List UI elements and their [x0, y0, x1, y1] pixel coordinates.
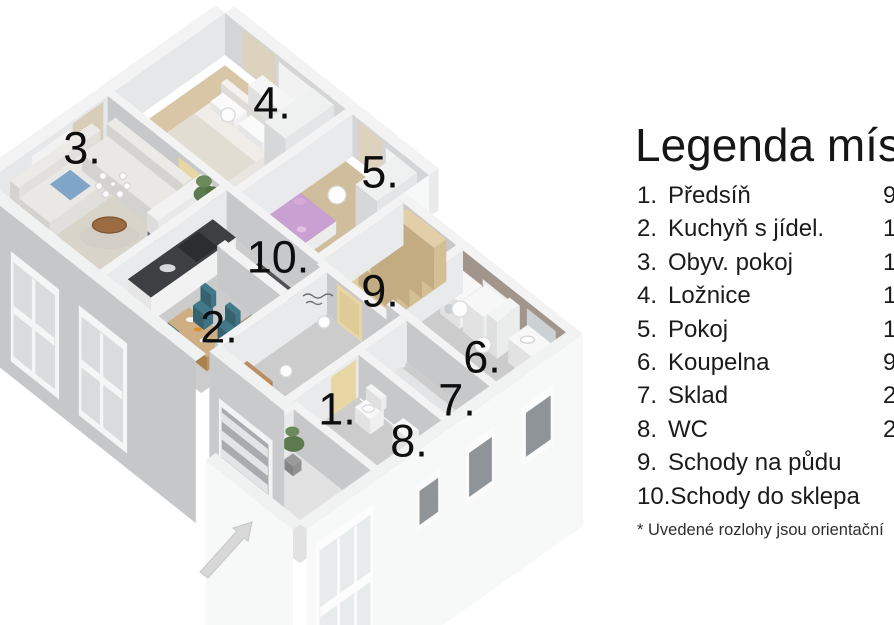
room-area-value: 2 [883, 382, 894, 411]
legend-item: 8.WC2 [637, 416, 708, 445]
floorplan-scene [0, 5, 583, 625]
legend-item: 10.Schody do sklepa [637, 483, 860, 512]
legend-item: 2.Kuchyň s jídel.1 [637, 215, 824, 244]
room-area-value: 9 [883, 182, 894, 211]
legend-item: 9.Schody na půdu [637, 449, 841, 478]
room-area-value: 1 [883, 316, 894, 345]
legend-item: 6.Koupelna9 [637, 349, 769, 378]
legend-item: 7.Sklad2 [637, 382, 728, 411]
room-area-value: 1 [883, 249, 894, 278]
legend-footnote: * Uvedené rozlohy jsou orientační [637, 521, 884, 540]
room-area-value: 1 [883, 282, 894, 311]
room-number-label: 2. [200, 305, 238, 350]
room-number-label: 5. [361, 150, 399, 195]
floorplan-render [0, 0, 632, 625]
legend-title: Legenda místností [635, 118, 894, 172]
room-number-label: 10. [247, 235, 310, 280]
room-area-value: 2 [883, 416, 894, 445]
legend-item: 3.Obyv. pokoj1 [637, 249, 793, 278]
room-number-label: 8. [390, 419, 428, 464]
room-number-label: 1. [318, 387, 356, 432]
room-number-label: 9. [361, 269, 399, 314]
room-number-label: 7. [438, 378, 476, 423]
legend-item: 4.Ložnice1 [637, 282, 751, 311]
floorplan-page: 1. 2. 3. 4. 5. 6. 7. 8. 9. 10. Legenda m… [0, 0, 894, 625]
room-area-value: 1 [883, 215, 894, 244]
room-number-label: 6. [463, 335, 501, 380]
room-area-value: 9 [883, 349, 894, 378]
room-number-label: 4. [253, 81, 291, 126]
legend-item: 5.Pokoj1 [637, 316, 728, 345]
room-number-label: 3. [63, 126, 101, 171]
legend-item: 1.Předsíň9 [637, 182, 751, 211]
